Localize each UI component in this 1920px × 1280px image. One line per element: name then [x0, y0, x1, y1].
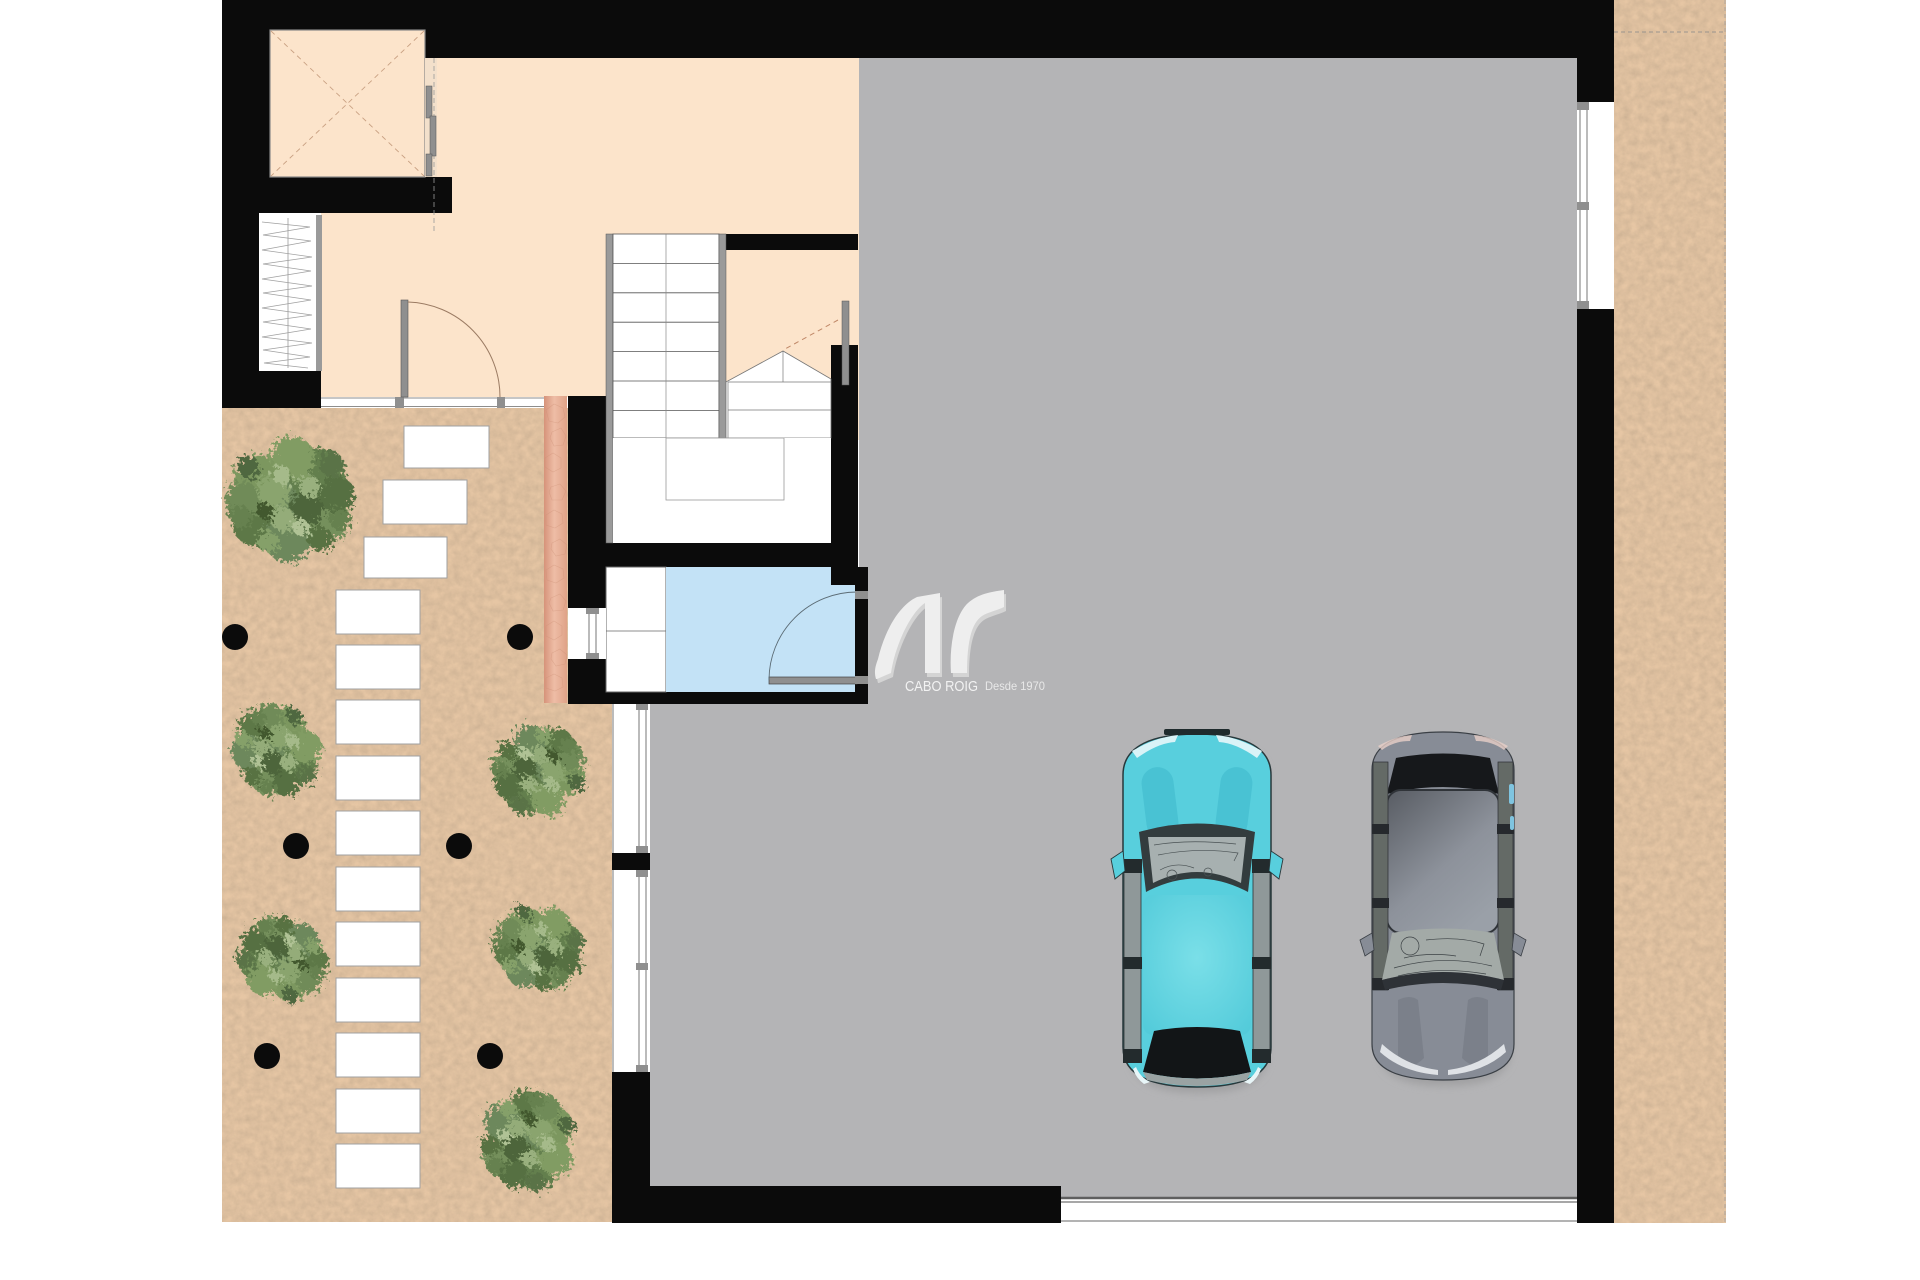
svg-text:Desde 1970: Desde 1970 [985, 679, 1045, 693]
svg-text:CABO ROIG: CABO ROIG [905, 679, 978, 695]
